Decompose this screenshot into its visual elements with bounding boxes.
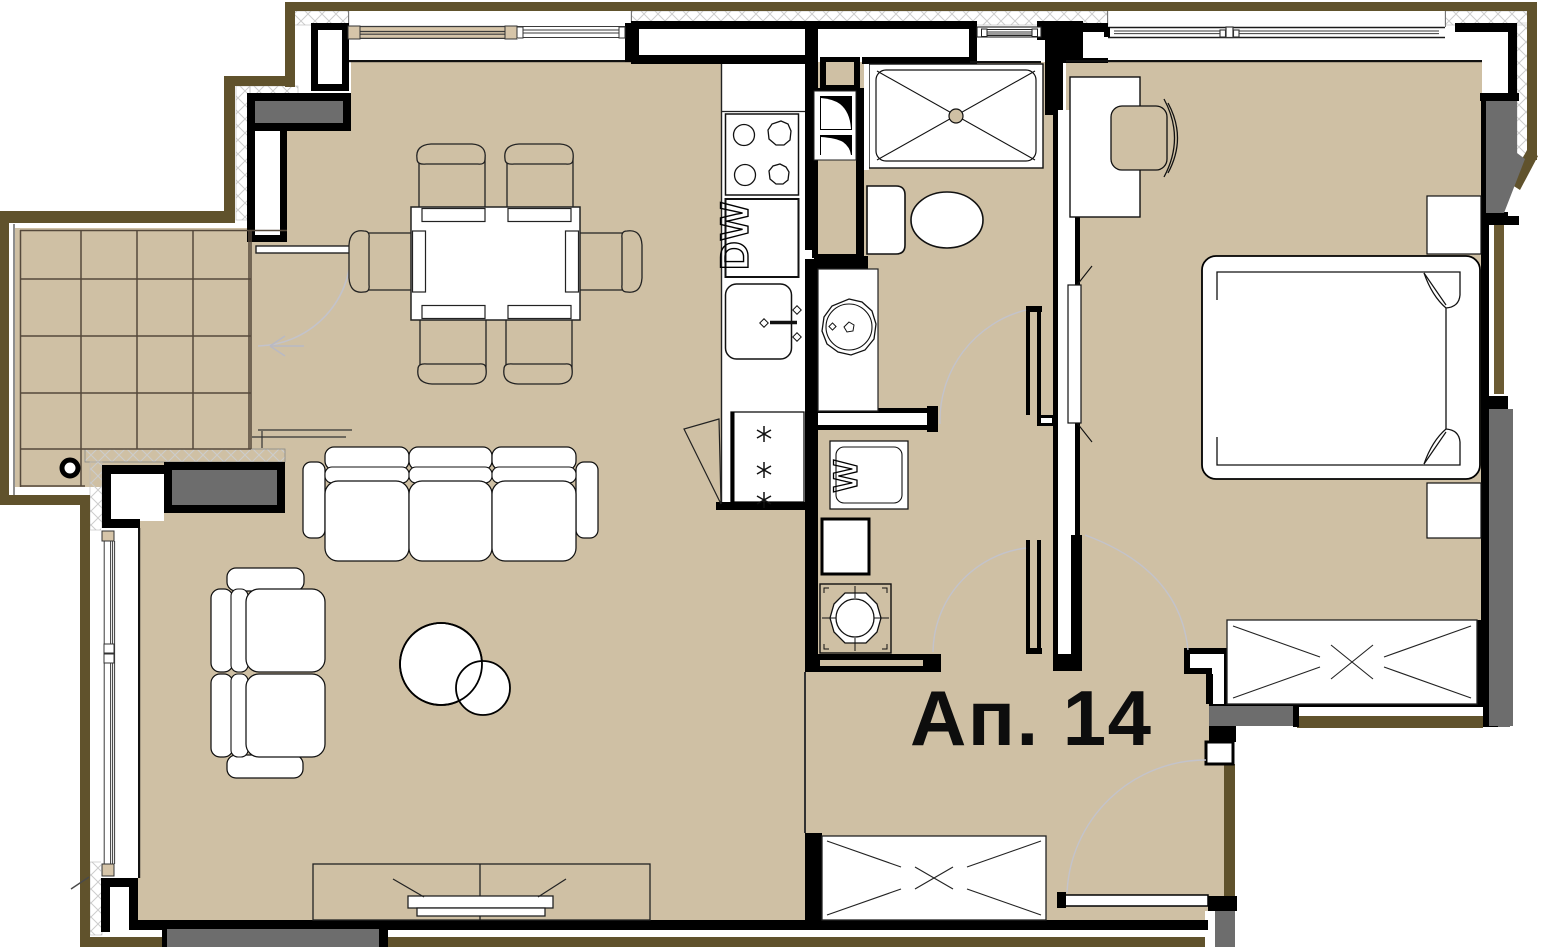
svg-text:W: W — [827, 459, 865, 492]
svg-text:Ап. 14: Ап. 14 — [910, 674, 1153, 762]
svg-text:DW: DW — [713, 201, 757, 270]
